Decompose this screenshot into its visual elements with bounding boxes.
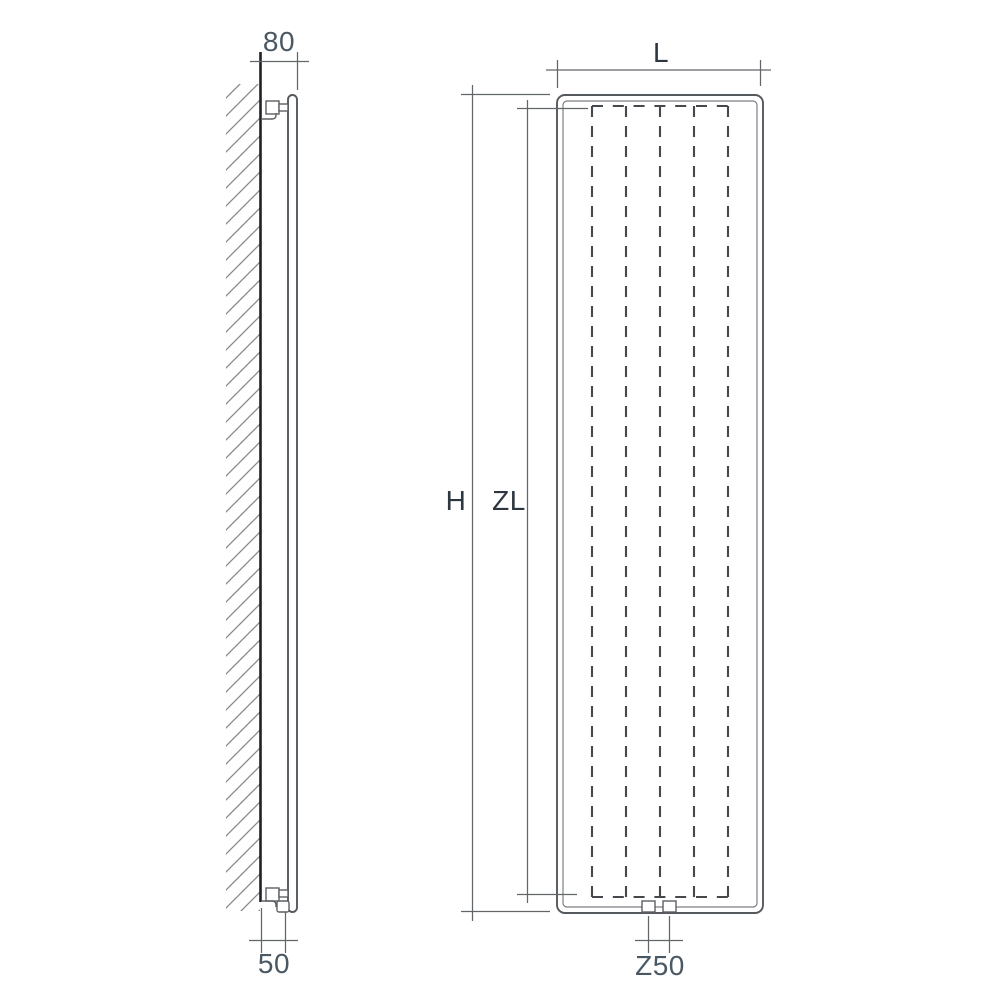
connection-stub-left: [642, 901, 655, 912]
dimension-depth-80: 80: [250, 26, 309, 90]
dimension-depth-label: 80: [263, 26, 295, 57]
dimension-connection-label: Z50: [635, 950, 685, 981]
dimension-width-label: L: [653, 37, 669, 68]
drawing-canvas: 80 50 L: [0, 0, 1000, 1000]
dimension-offset-50: 50: [249, 908, 298, 979]
radiator-side-profile: [288, 95, 297, 912]
bottom-connection-elbow: [277, 901, 289, 912]
dimension-connection-Z50: Z50: [635, 916, 685, 981]
side-view: 80 50: [226, 26, 309, 979]
connection-stub-right: [663, 901, 676, 912]
front-view: L H ZL Z50: [446, 37, 771, 981]
dimension-width-L: L: [546, 37, 771, 88]
wall-hatch: [226, 84, 260, 911]
dimension-height-label: H: [446, 485, 467, 516]
dimension-offset-label: 50: [258, 948, 290, 979]
top-mounting-bracket: [261, 101, 288, 119]
radiator-dimension-drawing: 80 50 L: [0, 0, 1000, 1000]
dimension-inner-height-label: ZL: [492, 485, 526, 516]
bottom-mounting-bracket: [261, 888, 289, 912]
